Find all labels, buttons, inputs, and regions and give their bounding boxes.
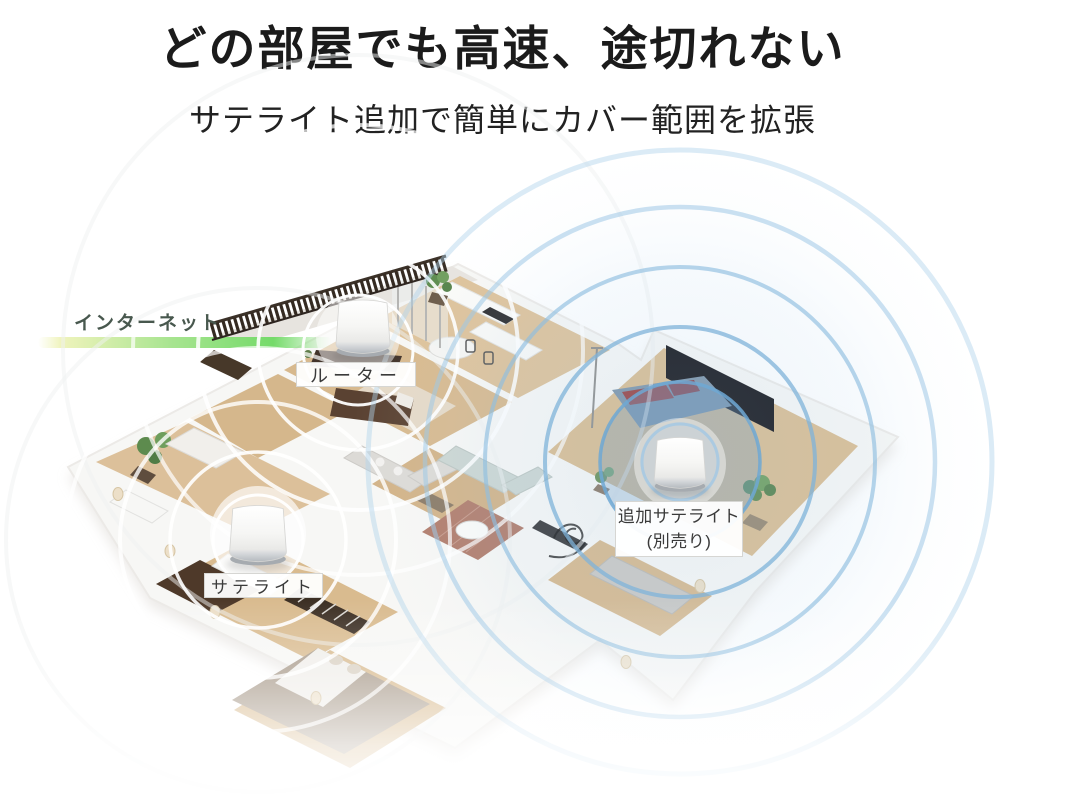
additional-satellite-device [634, 418, 726, 510]
product-hero-image: どの部屋でも高速、途切れない サテライト追加で簡単にカバー範囲を拡張 [0, 0, 1080, 808]
floorplan-illustration [0, 0, 1080, 808]
satellite-device [210, 486, 306, 582]
lamp [113, 488, 123, 501]
internet-label: インターネット [74, 308, 221, 335]
additional-satellite-label-line2: (別売り) [647, 529, 712, 554]
satellite-label: サテライト [204, 573, 323, 598]
additional-satellite-label: 追加サテライト (別売り) [615, 501, 743, 557]
additional-satellite-label-line1: 追加サテライト [618, 504, 741, 529]
internet-line [38, 337, 332, 348]
bottom-fade-overlay [0, 600, 1080, 808]
router-label: ルーター [296, 362, 416, 387]
